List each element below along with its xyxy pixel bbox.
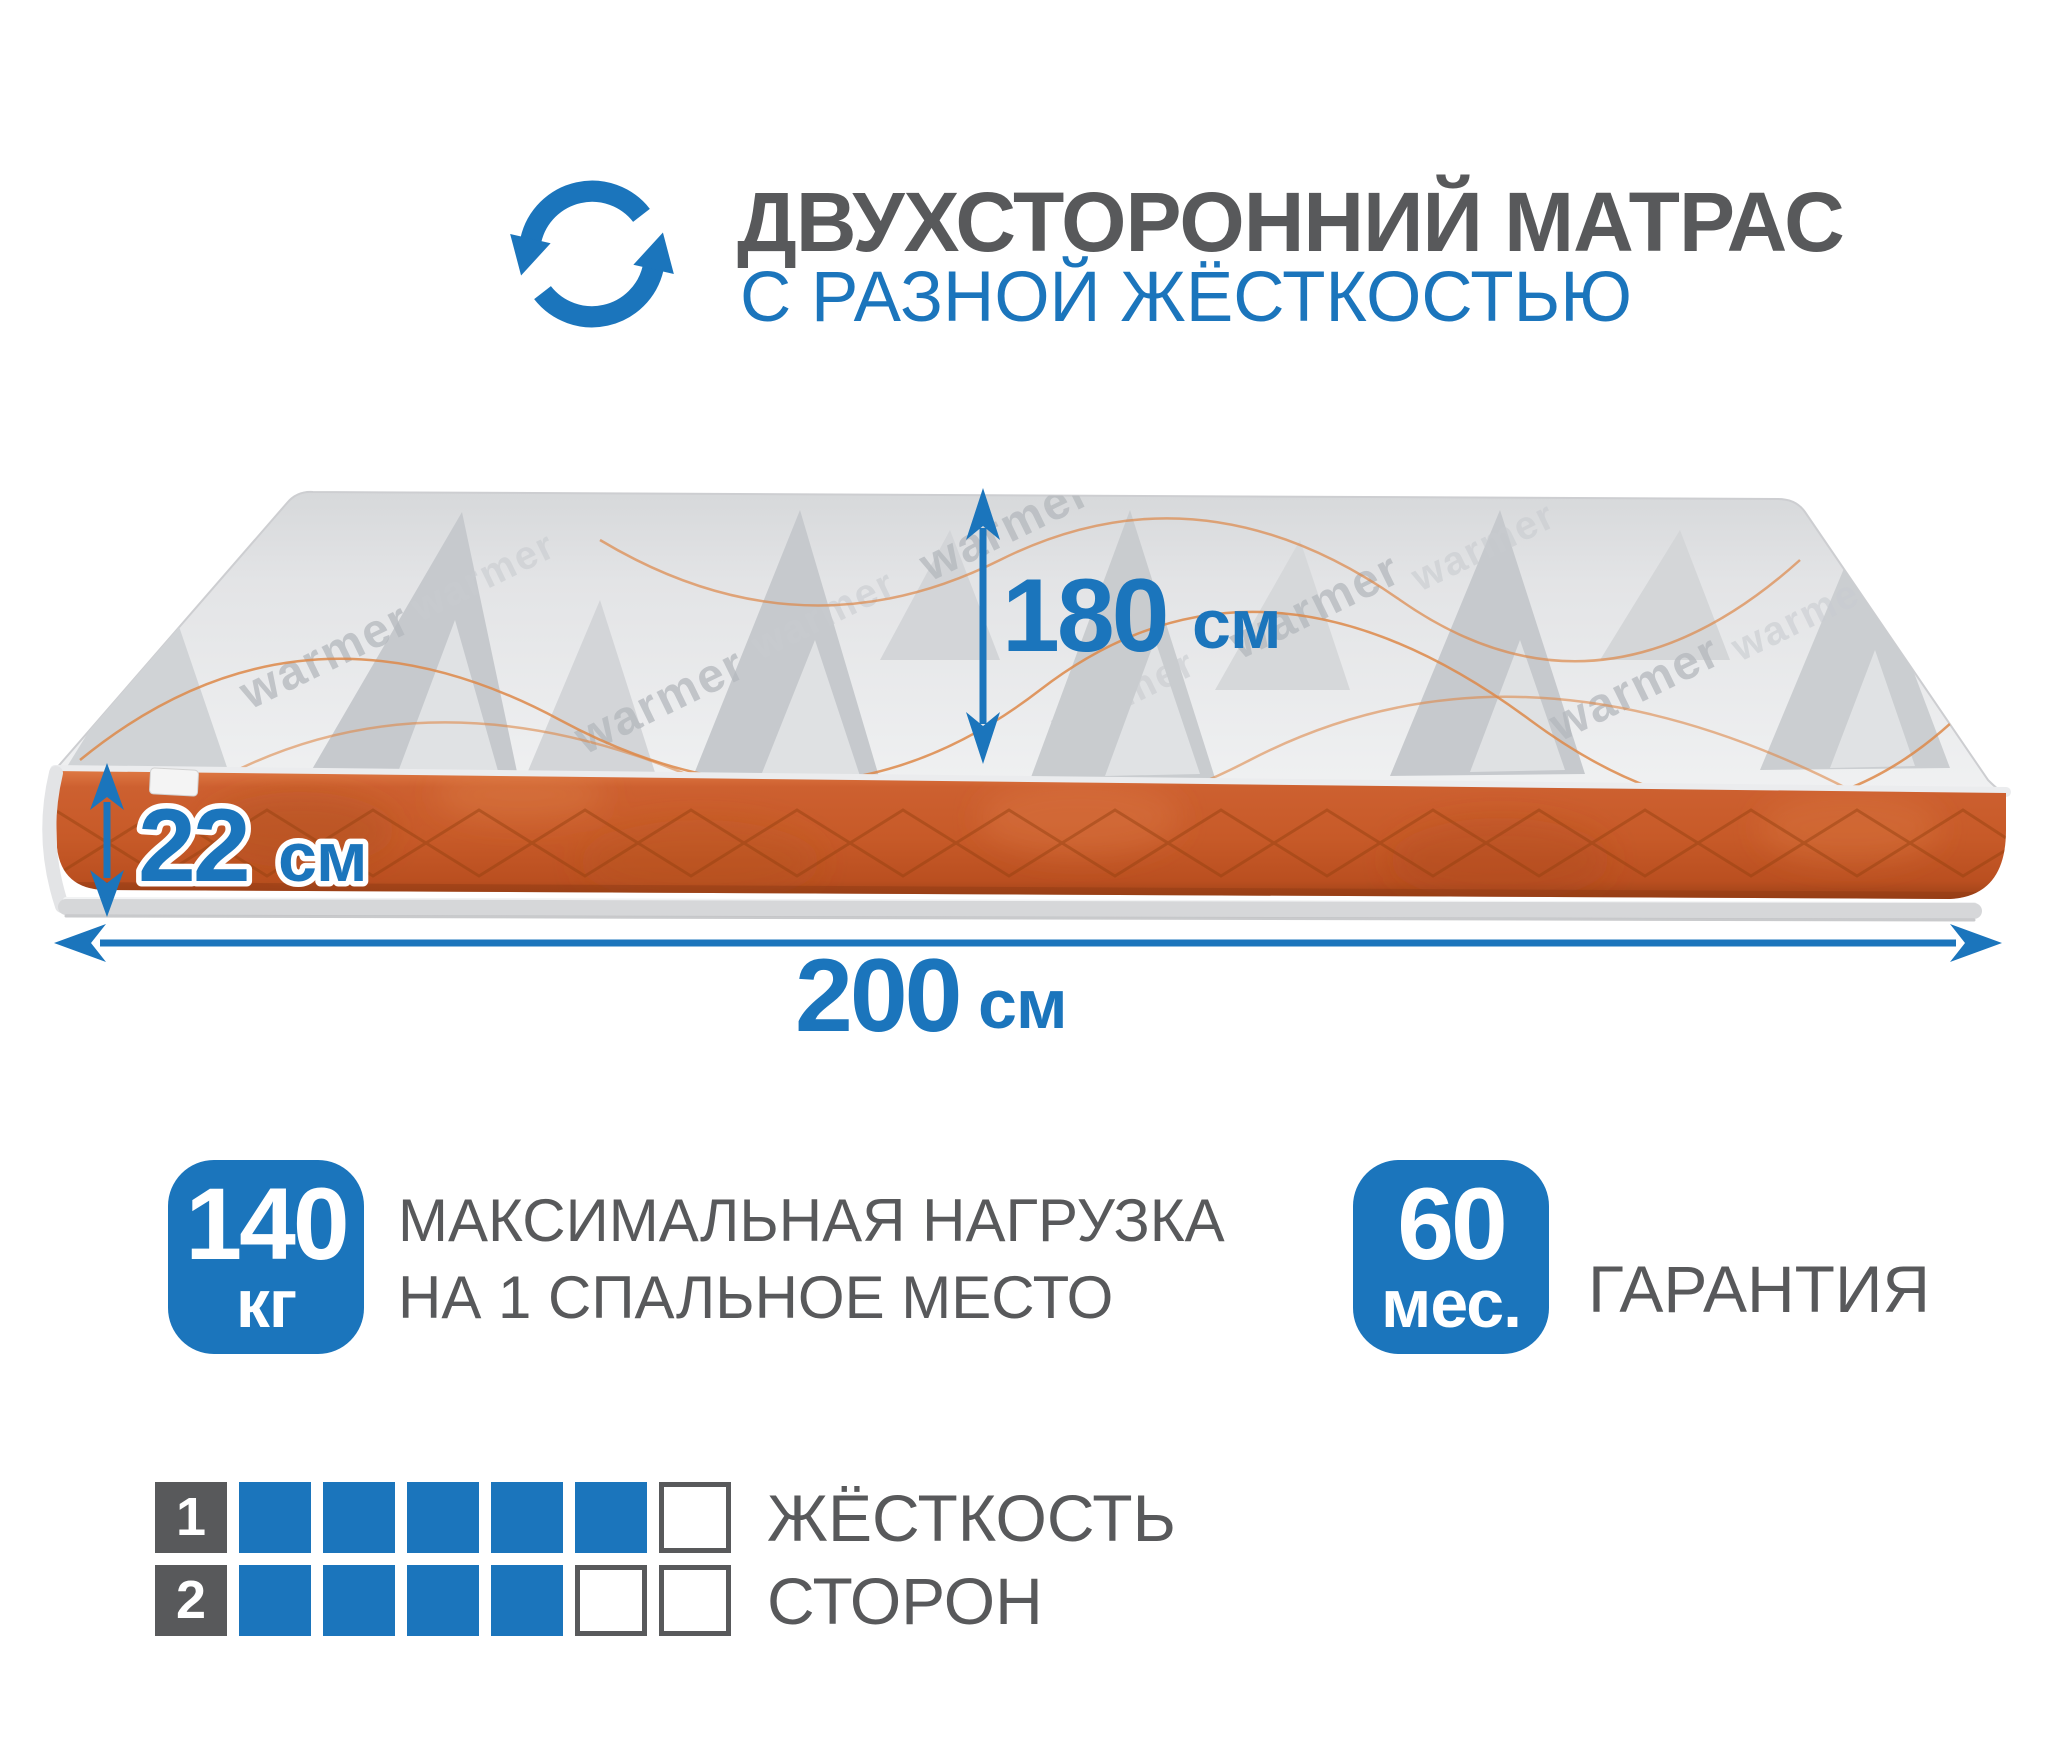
max-load-badge: 140 кг: [168, 1160, 364, 1354]
firmness-cell-filled: [323, 1565, 395, 1636]
firmness-row-side-1: 1: [155, 1482, 731, 1553]
page-title: ДВУХСТОРОННИЙ МАТРАС: [737, 180, 1844, 264]
warranty-badge: 60 мес.: [1353, 1160, 1549, 1354]
width-unit: см: [978, 965, 1067, 1043]
warranty-value: 60: [1397, 1178, 1504, 1272]
firmness-row-side-2: 2: [155, 1565, 731, 1636]
max-load-unit: кг: [236, 1272, 296, 1337]
firmness-side-number: 2: [155, 1565, 227, 1636]
max-load-label-line2: НА 1 СПАЛЬНОЕ МЕСТО: [398, 1259, 1225, 1336]
fabric-brand-text: warmer: [1861, 482, 2048, 610]
firmness-cell-filled: [239, 1482, 311, 1553]
firmness-side-number: 1: [155, 1482, 227, 1553]
max-load-value: 140: [185, 1178, 346, 1272]
mattress-infographic: ДВУХСТОРОННИЙ МАТРАС С РАЗНОЙ ЖЁСТКОСТЬЮ: [0, 0, 2048, 1757]
firmness-cell-filled: [239, 1565, 311, 1636]
dimension-width: 200 см: [54, 924, 2002, 1054]
length-unit: см: [1192, 585, 1281, 663]
firmness-cell-empty: [575, 1565, 647, 1636]
height-value: 22: [138, 788, 248, 904]
firmness-title-line1: ЖЁСТКОСТЬ: [767, 1482, 1176, 1553]
warranty-unit: мес.: [1381, 1272, 1521, 1337]
width-value: 200: [795, 938, 960, 1054]
page-subtitle: С РАЗНОЙ ЖЁСТКОСТЬЮ: [740, 262, 1632, 333]
max-load-label: МАКСИМАЛЬНАЯ НАГРУЗКА НА 1 СПАЛЬНОЕ МЕСТ…: [398, 1182, 1225, 1336]
length-value: 180: [1002, 558, 1167, 674]
max-load-label-line1: МАКСИМАЛЬНАЯ НАГРУЗКА: [398, 1182, 1225, 1259]
firmness-cell-empty: [659, 1482, 731, 1553]
height-unit: см: [278, 818, 367, 896]
mattress-illustration: warmer warmer warmer warmer warmer warme…: [0, 360, 2048, 1060]
firmness-cell-filled: [575, 1482, 647, 1553]
firmness-cell-filled: [491, 1482, 563, 1553]
firmness-title-line2: СТОРОН: [767, 1565, 1043, 1636]
firmness-cell-filled: [491, 1565, 563, 1636]
firmness-cell-filled: [407, 1482, 479, 1553]
firmness-cell-empty: [659, 1565, 731, 1636]
warranty-label: ГАРАНТИЯ: [1588, 1256, 1930, 1322]
firmness-cell-filled: [323, 1482, 395, 1553]
firmness-cell-filled: [407, 1565, 479, 1636]
rotate-arrows-icon: [506, 168, 678, 340]
